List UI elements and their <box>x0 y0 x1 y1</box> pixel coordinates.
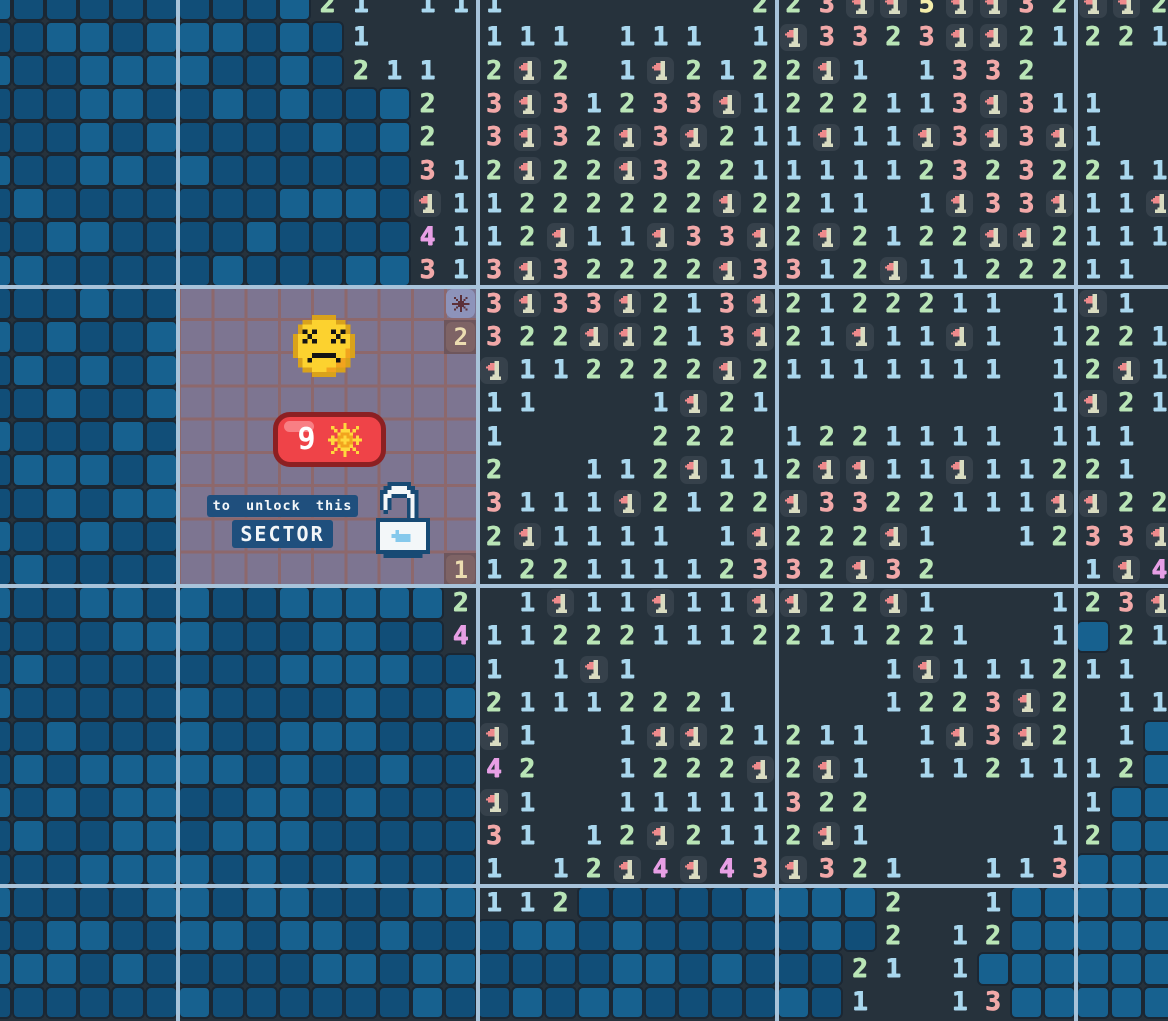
number-cell[interactable]: 2 <box>611 354 644 387</box>
number-cell[interactable]: 1 <box>843 187 876 220</box>
flag-tile[interactable] <box>511 87 544 120</box>
unrevealed-tile[interactable] <box>0 420 12 453</box>
unrevealed-tile[interactable] <box>278 753 311 786</box>
flag-tile[interactable] <box>1043 121 1076 154</box>
number-cell[interactable]: 2 <box>1043 453 1076 486</box>
unrevealed-tile[interactable] <box>444 653 477 686</box>
unrevealed-tile[interactable] <box>677 986 710 1019</box>
number-cell[interactable]: 1 <box>511 786 544 819</box>
unrevealed-tile[interactable] <box>0 986 12 1019</box>
number-cell[interactable]: 1 <box>744 87 777 120</box>
unrevealed-tile[interactable] <box>45 686 78 719</box>
unrevealed-tile[interactable] <box>111 254 144 287</box>
unrevealed-tile[interactable] <box>1143 886 1168 919</box>
unrevealed-tile[interactable] <box>344 653 377 686</box>
number-cell[interactable]: 2 <box>777 819 810 852</box>
number-cell[interactable]: 1 <box>943 952 976 985</box>
number-cell[interactable]: 1 <box>744 121 777 154</box>
number-cell[interactable]: 1 <box>1110 453 1143 486</box>
unrevealed-tile[interactable] <box>45 187 78 220</box>
number-cell[interactable]: 1 <box>744 21 777 54</box>
number-cell[interactable]: 2 <box>644 254 677 287</box>
number-cell[interactable]: 1 <box>810 720 843 753</box>
number-cell[interactable]: 1 <box>1076 420 1109 453</box>
number-cell[interactable]: 2 <box>744 354 777 387</box>
number-cell[interactable]: 1 <box>477 387 510 420</box>
number-cell[interactable]: 1 <box>544 354 577 387</box>
unrevealed-tile[interactable] <box>544 986 577 1019</box>
number-cell[interactable]: 1 <box>511 720 544 753</box>
unrevealed-tile[interactable] <box>311 786 344 819</box>
number-cell[interactable]: 3 <box>1110 586 1143 619</box>
number-cell[interactable]: 2 <box>1143 487 1168 520</box>
number-cell[interactable]: 2 <box>511 553 544 586</box>
number-cell[interactable]: 2 <box>1043 653 1076 686</box>
flag-tile[interactable] <box>511 520 544 553</box>
unrevealed-tile[interactable] <box>278 220 311 253</box>
number-cell[interactable]: 2 <box>943 220 976 253</box>
unrevealed-tile[interactable] <box>344 720 377 753</box>
number-cell[interactable]: 1 <box>511 620 544 653</box>
flag-tile[interactable] <box>977 0 1010 21</box>
unrevealed-tile[interactable] <box>12 387 45 420</box>
number-cell[interactable]: 2 <box>677 819 710 852</box>
unrevealed-tile[interactable] <box>511 986 544 1019</box>
number-cell[interactable]: 2 <box>910 220 943 253</box>
unrevealed-tile[interactable] <box>111 87 144 120</box>
flag-tile[interactable] <box>744 287 777 320</box>
unrevealed-tile[interactable] <box>777 986 810 1019</box>
number-cell[interactable]: 3 <box>1010 154 1043 187</box>
number-cell[interactable]: 2 <box>544 320 577 353</box>
unrevealed-tile[interactable] <box>78 387 111 420</box>
number-cell[interactable]: 1 <box>977 320 1010 353</box>
number-cell[interactable]: 1 <box>877 853 910 886</box>
unrevealed-tile[interactable] <box>12 753 45 786</box>
flag-tile[interactable] <box>777 487 810 520</box>
number-cell[interactable]: 1 <box>744 387 777 420</box>
number-cell[interactable]: 1 <box>1043 320 1076 353</box>
unrevealed-tile[interactable] <box>45 919 78 952</box>
number-cell[interactable]: 3 <box>744 254 777 287</box>
number-cell[interactable]: 1 <box>877 121 910 154</box>
unrevealed-tile[interactable] <box>311 686 344 719</box>
flag-tile[interactable] <box>611 487 644 520</box>
unrevealed-tile[interactable] <box>178 720 211 753</box>
number-cell[interactable]: 2 <box>577 187 610 220</box>
number-cell[interactable]: 1 <box>1043 387 1076 420</box>
unrevealed-tile[interactable] <box>311 952 344 985</box>
number-cell[interactable]: 3 <box>544 87 577 120</box>
unrevealed-tile[interactable] <box>245 886 278 919</box>
number-cell[interactable]: 1 <box>877 320 910 353</box>
unrevealed-tile[interactable] <box>178 686 211 719</box>
number-cell[interactable]: 2 <box>810 420 843 453</box>
unrevealed-tile[interactable] <box>611 986 644 1019</box>
number-cell[interactable]: 1 <box>877 420 910 453</box>
number-cell[interactable]: 4 <box>411 220 444 253</box>
unrevealed-tile[interactable] <box>344 87 377 120</box>
unrevealed-tile[interactable] <box>1143 919 1168 952</box>
number-cell[interactable]: 1 <box>977 853 1010 886</box>
unrevealed-tile[interactable] <box>344 154 377 187</box>
unrevealed-tile[interactable] <box>1043 952 1076 985</box>
number-cell[interactable]: 1 <box>577 87 610 120</box>
number-cell[interactable]: 1 <box>677 786 710 819</box>
number-cell[interactable]: 2 <box>877 919 910 952</box>
number-cell[interactable]: 2 <box>744 54 777 87</box>
number-cell[interactable]: 1 <box>777 420 810 453</box>
unrevealed-tile[interactable] <box>111 121 144 154</box>
unrevealed-tile[interactable] <box>411 720 444 753</box>
unrevealed-tile[interactable] <box>977 952 1010 985</box>
unrevealed-tile[interactable] <box>378 952 411 985</box>
number-cell[interactable]: 1 <box>477 553 510 586</box>
number-cell[interactable]: 3 <box>477 320 510 353</box>
number-cell[interactable]: 2 <box>877 487 910 520</box>
number-cell[interactable]: 2 <box>1043 154 1076 187</box>
flag-tile[interactable] <box>1143 187 1168 220</box>
number-cell[interactable]: 2 <box>577 853 610 886</box>
number-cell[interactable]: 2 <box>744 487 777 520</box>
number-cell[interactable]: 1 <box>1143 154 1168 187</box>
flag-tile[interactable] <box>511 287 544 320</box>
number-cell[interactable]: 2 <box>977 753 1010 786</box>
number-cell[interactable]: 1 <box>843 121 876 154</box>
number-cell[interactable]: 1 <box>677 620 710 653</box>
number-cell[interactable]: 2 <box>777 753 810 786</box>
number-cell[interactable]: 2 <box>910 553 943 586</box>
flag-tile[interactable] <box>577 320 610 353</box>
unrevealed-tile[interactable] <box>145 653 178 686</box>
unrevealed-tile[interactable] <box>111 320 144 353</box>
flag-tile[interactable] <box>843 0 876 21</box>
unrevealed-tile[interactable] <box>45 220 78 253</box>
unrevealed-tile[interactable] <box>78 620 111 653</box>
number-cell[interactable]: 1 <box>477 886 510 919</box>
number-cell[interactable]: 1 <box>943 986 976 1019</box>
unrevealed-tile[interactable] <box>111 753 144 786</box>
flag-tile[interactable] <box>777 586 810 619</box>
unrevealed-tile[interactable] <box>145 753 178 786</box>
flag-tile[interactable] <box>677 387 710 420</box>
unrevealed-tile[interactable] <box>344 220 377 253</box>
unrevealed-tile[interactable] <box>178 819 211 852</box>
number-cell[interactable]: 1 <box>1143 686 1168 719</box>
flag-tile[interactable] <box>677 853 710 886</box>
flag-tile[interactable] <box>977 121 1010 154</box>
unrevealed-tile[interactable] <box>278 686 311 719</box>
number-cell[interactable]: 2 <box>577 254 610 287</box>
unrevealed-tile[interactable] <box>444 819 477 852</box>
unrevealed-tile[interactable] <box>777 952 810 985</box>
unrevealed-tile[interactable] <box>78 21 111 54</box>
number-cell[interactable]: 2 <box>644 686 677 719</box>
unrevealed-tile[interactable] <box>111 786 144 819</box>
unrevealed-tile[interactable] <box>211 121 244 154</box>
unrevealed-tile[interactable] <box>311 886 344 919</box>
number-cell[interactable]: 3 <box>810 0 843 21</box>
unrevealed-tile[interactable] <box>145 453 178 486</box>
unrevealed-tile[interactable] <box>644 886 677 919</box>
unrevealed-tile[interactable] <box>278 886 311 919</box>
number-cell[interactable]: 2 <box>777 54 810 87</box>
flag-tile[interactable] <box>1043 187 1076 220</box>
unrevealed-tile[interactable] <box>444 786 477 819</box>
unrevealed-tile[interactable] <box>178 254 211 287</box>
unrevealed-tile[interactable] <box>111 21 144 54</box>
flag-tile[interactable] <box>544 586 577 619</box>
unrevealed-tile[interactable] <box>12 287 45 320</box>
unrevealed-tile[interactable] <box>111 886 144 919</box>
number-cell[interactable]: 3 <box>777 786 810 819</box>
unrevealed-tile[interactable] <box>211 952 244 985</box>
unrevealed-tile[interactable] <box>0 320 12 353</box>
number-cell[interactable]: 2 <box>644 187 677 220</box>
number-cell[interactable]: 1 <box>1076 121 1109 154</box>
unrevealed-tile[interactable] <box>245 87 278 120</box>
unrevealed-tile[interactable] <box>411 686 444 719</box>
unrevealed-tile[interactable] <box>278 586 311 619</box>
unrevealed-tile[interactable] <box>444 853 477 886</box>
unrevealed-tile[interactable] <box>577 886 610 919</box>
unrevealed-tile[interactable] <box>710 886 743 919</box>
number-cell[interactable]: 1 <box>977 354 1010 387</box>
unrevealed-tile[interactable] <box>278 154 311 187</box>
number-cell[interactable]: 2 <box>577 154 610 187</box>
unrevealed-tile[interactable] <box>12 320 45 353</box>
number-cell[interactable]: 3 <box>477 287 510 320</box>
number-cell[interactable]: 1 <box>477 620 510 653</box>
number-cell[interactable]: 2 <box>710 487 743 520</box>
unrevealed-tile[interactable] <box>178 786 211 819</box>
number-cell[interactable]: 2 <box>843 87 876 120</box>
flag-tile[interactable] <box>1143 520 1168 553</box>
unrevealed-tile[interactable] <box>1076 853 1109 886</box>
number-cell[interactable]: 1 <box>810 254 843 287</box>
unrevealed-tile[interactable] <box>710 919 743 952</box>
unrevealed-tile[interactable] <box>1010 986 1043 1019</box>
number-cell[interactable]: 1 <box>943 420 976 453</box>
number-cell[interactable]: 1 <box>810 287 843 320</box>
unrevealed-tile[interactable] <box>810 986 843 1019</box>
unrevealed-tile[interactable] <box>245 686 278 719</box>
unrevealed-tile[interactable] <box>245 819 278 852</box>
flag-tile[interactable] <box>644 586 677 619</box>
flag-tile[interactable] <box>943 187 976 220</box>
flag-tile[interactable] <box>1076 387 1109 420</box>
unrevealed-tile[interactable] <box>1010 952 1043 985</box>
number-cell[interactable]: 4 <box>477 753 510 786</box>
number-cell[interactable]: 1 <box>1043 753 1076 786</box>
number-cell[interactable]: 1 <box>477 853 510 886</box>
number-cell[interactable]: 1 <box>1076 220 1109 253</box>
unrevealed-tile[interactable] <box>344 753 377 786</box>
unrevealed-tile[interactable] <box>178 753 211 786</box>
number-cell[interactable]: 3 <box>577 287 610 320</box>
number-cell[interactable]: 1 <box>910 254 943 287</box>
unrevealed-tile[interactable] <box>145 919 178 952</box>
unrevealed-tile[interactable] <box>577 986 610 1019</box>
number-cell[interactable]: 1 <box>611 720 644 753</box>
number-cell[interactable]: 2 <box>677 420 710 453</box>
unrevealed-tile[interactable] <box>411 753 444 786</box>
number-cell[interactable]: 3 <box>977 720 1010 753</box>
unrevealed-tile[interactable] <box>378 919 411 952</box>
unrevealed-tile[interactable] <box>178 87 211 120</box>
unrevealed-tile[interactable] <box>145 553 178 586</box>
number-cell[interactable]: 3 <box>544 121 577 154</box>
unrevealed-tile[interactable] <box>145 254 178 287</box>
unrevealed-tile[interactable] <box>145 154 178 187</box>
flag-tile[interactable] <box>1010 220 1043 253</box>
flag-tile[interactable] <box>644 54 677 87</box>
unrevealed-tile[interactable] <box>45 121 78 154</box>
unrevealed-tile[interactable] <box>677 952 710 985</box>
unrevealed-tile[interactable] <box>12 87 45 120</box>
number-cell[interactable]: 1 <box>477 187 510 220</box>
unrevealed-tile[interactable] <box>178 620 211 653</box>
unrevealed-tile[interactable] <box>0 853 12 886</box>
unrevealed-tile[interactable] <box>477 919 510 952</box>
unrevealed-tile[interactable] <box>378 187 411 220</box>
unrevealed-tile[interactable] <box>145 121 178 154</box>
unrevealed-tile[interactable] <box>78 720 111 753</box>
number-cell[interactable]: 1 <box>710 54 743 87</box>
number-cell[interactable]: 3 <box>544 254 577 287</box>
flag-tile[interactable] <box>877 254 910 287</box>
number-cell[interactable]: 1 <box>910 187 943 220</box>
number-cell[interactable]: 1 <box>544 487 577 520</box>
unrevealed-tile[interactable] <box>178 986 211 1019</box>
number-cell[interactable]: 3 <box>843 487 876 520</box>
unrevealed-tile[interactable] <box>311 54 344 87</box>
number-cell[interactable]: 1 <box>644 520 677 553</box>
unrevealed-tile[interactable] <box>278 187 311 220</box>
number-cell[interactable]: 2 <box>1076 320 1109 353</box>
number-cell[interactable]: 1 <box>777 354 810 387</box>
number-cell[interactable]: 2 <box>977 154 1010 187</box>
unrevealed-tile[interactable] <box>378 220 411 253</box>
number-cell[interactable]: 1 <box>611 453 644 486</box>
number-cell[interactable]: 2 <box>910 620 943 653</box>
unrevealed-tile[interactable] <box>211 853 244 886</box>
number-cell[interactable]: 1 <box>511 354 544 387</box>
unrevealed-tile[interactable] <box>111 154 144 187</box>
number-cell[interactable]: 1 <box>1010 487 1043 520</box>
number-cell[interactable]: 1 <box>1110 187 1143 220</box>
unrevealed-tile[interactable] <box>211 919 244 952</box>
flag-tile[interactable] <box>1010 720 1043 753</box>
unrevealed-tile[interactable] <box>344 952 377 985</box>
unrevealed-tile[interactable] <box>178 853 211 886</box>
unrevealed-tile[interactable] <box>644 986 677 1019</box>
number-cell[interactable]: 2 <box>544 886 577 919</box>
unrevealed-tile[interactable] <box>245 220 278 253</box>
number-cell[interactable]: 1 <box>577 586 610 619</box>
unrevealed-tile[interactable] <box>245 121 278 154</box>
flag-tile[interactable] <box>943 320 976 353</box>
unrevealed-tile[interactable] <box>378 254 411 287</box>
number-cell[interactable]: 2 <box>777 220 810 253</box>
unrevealed-tile[interactable] <box>378 786 411 819</box>
number-cell[interactable]: 2 <box>1110 620 1143 653</box>
unrevealed-tile[interactable] <box>278 54 311 87</box>
number-cell[interactable]: 2 <box>1110 320 1143 353</box>
number-cell[interactable]: 1 <box>810 154 843 187</box>
number-cell[interactable]: 1 <box>810 187 843 220</box>
flag-tile[interactable] <box>910 653 943 686</box>
unrevealed-tile[interactable] <box>344 686 377 719</box>
unrevealed-tile[interactable] <box>145 853 178 886</box>
unrevealed-tile[interactable] <box>211 586 244 619</box>
unrevealed-tile[interactable] <box>311 620 344 653</box>
number-cell[interactable]: 1 <box>843 753 876 786</box>
number-cell[interactable]: 3 <box>744 853 777 886</box>
unrevealed-tile[interactable] <box>0 187 12 220</box>
unrevealed-tile[interactable] <box>278 720 311 753</box>
unrevealed-tile[interactable] <box>511 952 544 985</box>
unrevealed-tile[interactable] <box>1143 853 1168 886</box>
number-cell[interactable]: 1 <box>1076 753 1109 786</box>
number-cell[interactable]: 1 <box>843 720 876 753</box>
number-cell[interactable]: 1 <box>910 420 943 453</box>
unrevealed-tile[interactable] <box>843 919 876 952</box>
unrevealed-tile[interactable] <box>245 0 278 21</box>
number-cell[interactable]: 2 <box>777 320 810 353</box>
number-cell[interactable]: 2 <box>644 320 677 353</box>
number-cell[interactable]: 3 <box>810 21 843 54</box>
unrevealed-tile[interactable] <box>78 952 111 985</box>
unrevealed-tile[interactable] <box>111 54 144 87</box>
unrevealed-tile[interactable] <box>111 986 144 1019</box>
unrevealed-tile[interactable] <box>111 853 144 886</box>
number-cell[interactable]: 1 <box>843 620 876 653</box>
unrevealed-tile[interactable] <box>245 620 278 653</box>
number-cell[interactable]: 1 <box>344 0 377 21</box>
number-cell[interactable]: 2 <box>544 187 577 220</box>
unrevealed-tile[interactable] <box>744 886 777 919</box>
unrevealed-tile[interactable] <box>378 87 411 120</box>
number-cell[interactable]: 1 <box>1043 87 1076 120</box>
flag-tile[interactable] <box>1076 0 1109 21</box>
number-cell[interactable]: 2 <box>910 287 943 320</box>
number-cell[interactable]: 1 <box>744 720 777 753</box>
unrevealed-tile[interactable] <box>145 320 178 353</box>
unrevealed-tile[interactable] <box>278 121 311 154</box>
flag-tile[interactable] <box>943 720 976 753</box>
number-cell[interactable]: 1 <box>943 354 976 387</box>
number-cell[interactable]: 1 <box>943 753 976 786</box>
unrevealed-tile[interactable] <box>245 254 278 287</box>
unrevealed-tile[interactable] <box>45 54 78 87</box>
unrevealed-tile[interactable] <box>45 453 78 486</box>
number-cell[interactable]: 2 <box>1110 753 1143 786</box>
unrevealed-tile[interactable] <box>577 919 610 952</box>
unrevealed-tile[interactable] <box>278 819 311 852</box>
unrevealed-tile[interactable] <box>12 0 45 21</box>
number-cell[interactable]: 1 <box>544 21 577 54</box>
unrevealed-tile[interactable] <box>245 952 278 985</box>
number-cell[interactable]: 2 <box>1143 0 1168 21</box>
unrevealed-tile[interactable] <box>245 853 278 886</box>
number-cell[interactable]: 1 <box>511 686 544 719</box>
number-cell[interactable]: 2 <box>777 453 810 486</box>
unrevealed-tile[interactable] <box>12 786 45 819</box>
number-cell[interactable]: 2 <box>511 220 544 253</box>
number-cell[interactable]: 1 <box>644 620 677 653</box>
flag-tile[interactable] <box>810 121 843 154</box>
